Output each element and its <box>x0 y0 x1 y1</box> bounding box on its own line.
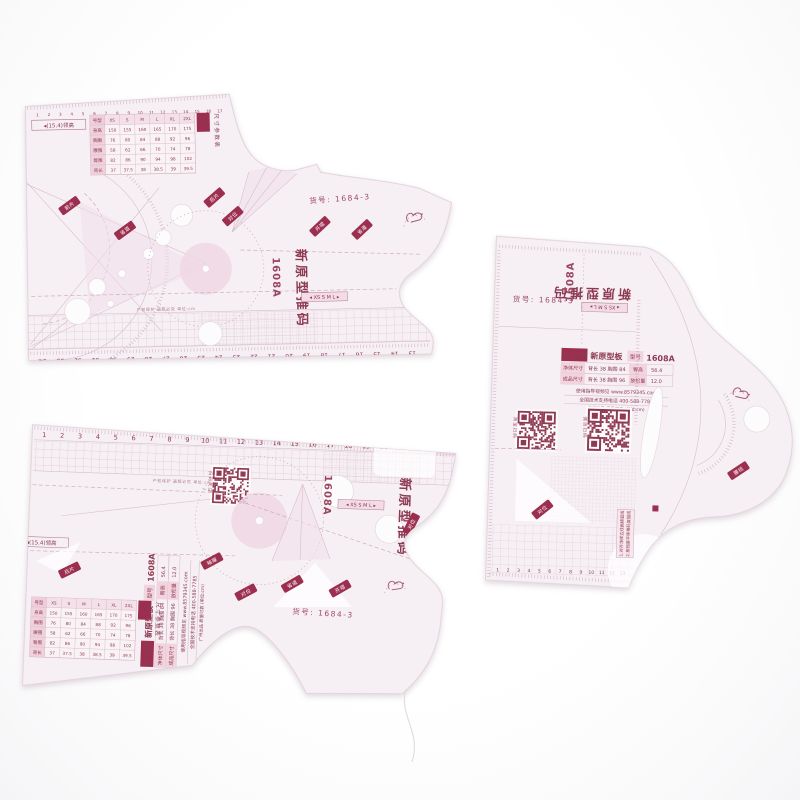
ruler-number: 25 <box>197 354 205 361</box>
qr-code <box>585 407 632 454</box>
marking-tag: 领口 <box>419 536 437 560</box>
template-bottom-left: 1234567891011121314151617181920212223 产权… <box>9 419 460 700</box>
fine-print: 产权保护 盗版必究 单位:cm <box>137 305 196 312</box>
ruler-number: 6 <box>131 434 135 442</box>
model-number: 1608A <box>565 261 577 302</box>
ruler-number: 28 <box>144 355 152 362</box>
svg-text:◂ XS S M L ▸: ◂ XS S M L ▸ <box>309 294 339 301</box>
ruler-number: 12 <box>237 438 246 446</box>
model-number: 1608A <box>321 475 333 516</box>
instruction-box: 1.对齐净样边线画顺弧线 2.按档差平移推码复描线 <box>616 509 634 557</box>
model-number: 1608A <box>270 257 282 298</box>
series-title: 新原型推码 <box>551 284 631 302</box>
ruler-number: 16 <box>308 440 317 448</box>
ruler-number: 7 <box>149 435 153 443</box>
ruler-number: 14 <box>273 439 282 447</box>
ruler-number: 4 <box>96 433 100 441</box>
ruler-number: 20 <box>285 352 293 359</box>
ruler-number: 17 <box>338 351 346 358</box>
ruler-number: 18 <box>320 351 328 358</box>
ruler-number: 24 <box>215 353 223 360</box>
ruler-number: 9 <box>185 436 189 444</box>
size-strip: ◂ XS S M L ▸ <box>582 302 628 312</box>
series-title: 新原型推码 <box>292 249 310 329</box>
ruler-number: 22 <box>250 353 258 360</box>
ruler-number: 1 <box>42 431 46 439</box>
ruler-number: 5 <box>114 434 118 442</box>
svg-text:对位: 对位 <box>433 281 445 294</box>
photo-canvas: 女上衣 新原型板 型号 1608A 净体尺寸 背长 38 胸围 84 臀高 56… <box>0 0 800 800</box>
ruler-number: 26 <box>179 354 187 361</box>
thread <box>404 689 414 762</box>
ruler-number: 15 <box>290 440 299 448</box>
ruler-number: 23 <box>232 353 240 360</box>
ruler-number: 11 <box>219 437 228 445</box>
template-top-left: 1234567891011121314151617 ◂(15.4)领高 <box>23 90 458 374</box>
svg-text:◂ XS S M L ▸: ◂ XS S M L ▸ <box>589 303 619 310</box>
svg-text:◂ XS S M L ▸: ◂ XS S M L ▸ <box>346 502 377 509</box>
size-strip: ◂ XS S M L ▸ <box>301 292 347 302</box>
size-strip: ◂ XS S M L ▸ <box>338 499 384 510</box>
ruler-number: 13 <box>408 349 416 356</box>
svg-text:省道: 省道 <box>442 503 454 516</box>
product-photo: 女上衣 新原型板 型号 1608A 净体尺寸 背长 38 胸围 84 臀高 56… <box>0 0 800 800</box>
alignment-mark <box>652 505 658 511</box>
ruler-number: 3 <box>78 432 82 440</box>
qr-code <box>515 409 558 452</box>
ruler-number: 27 <box>162 355 170 362</box>
svg-text:领口: 领口 <box>422 541 433 554</box>
ruler-number: 8 <box>167 435 171 443</box>
ruler-number: 19 <box>303 352 311 359</box>
ruler-number: 2 <box>60 432 64 440</box>
ruler-number: 14 <box>391 350 399 357</box>
ruler-number: 19 <box>362 442 371 450</box>
svg-text:肩线: 肩线 <box>439 245 451 258</box>
ruler-number: 21 <box>267 352 275 359</box>
marking-tag: 对位 <box>429 276 450 299</box>
ruler-number: 16 <box>355 350 363 357</box>
ruler-number: 10 <box>201 437 210 445</box>
template-right: 12345678910111213 货号: 1684-3 新原型推码 1608A… <box>485 236 797 610</box>
ruler-number: 15 <box>373 350 381 357</box>
